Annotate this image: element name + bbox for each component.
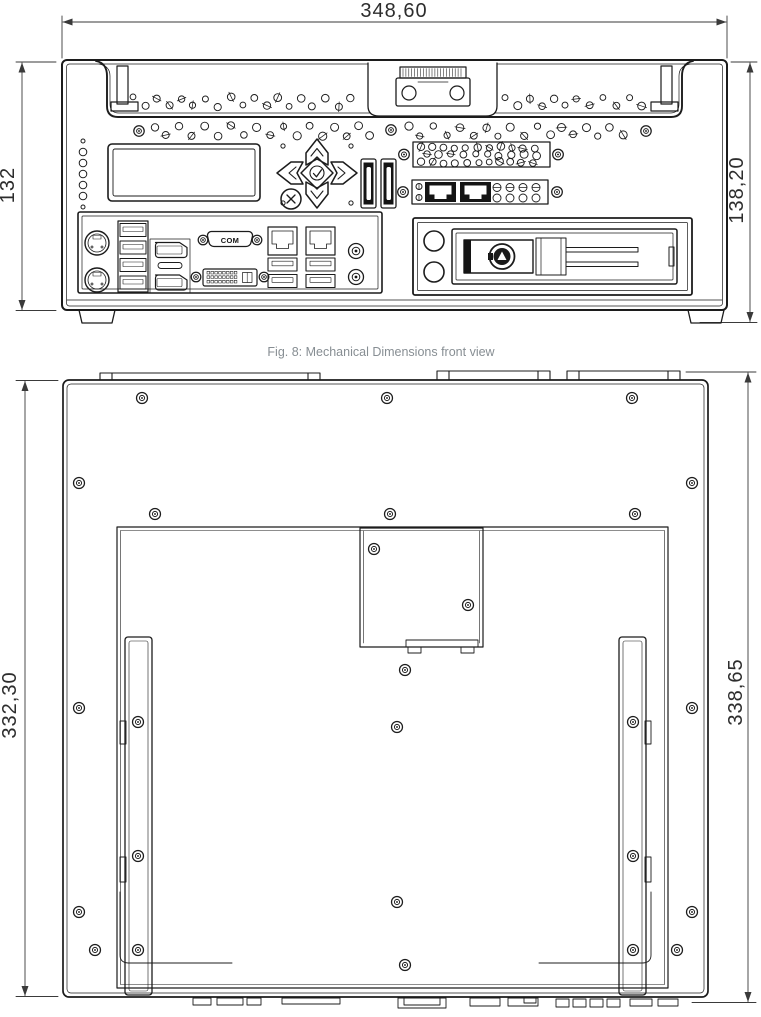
displayport-stack [150, 239, 190, 293]
vent-cluster-panel [413, 142, 550, 168]
corner-gussets [120, 892, 651, 963]
manual-figure-page: 348,60 132 138,20 [0, 0, 761, 1017]
lan-usb-block-1 [268, 227, 297, 288]
nav-down-button [306, 182, 328, 208]
ps2-port-top [85, 231, 109, 255]
usb-port [306, 258, 335, 271]
pin-hole-grid [493, 184, 540, 203]
vent-holes-recess-right [502, 94, 647, 110]
dim-height-right-front: 138,20 [700, 62, 757, 323]
nav-keypad [277, 139, 357, 209]
dim-label-height-left-back: 332,30 [0, 671, 21, 738]
vent-holes-recess-left [130, 92, 354, 112]
foot-left [79, 310, 115, 323]
recess-hook-right [661, 66, 672, 104]
led-column [79, 139, 87, 209]
drive-tray [452, 229, 677, 284]
back-view-drawing: 332,30 338,65 [0, 371, 756, 1008]
sata-port-2 [381, 159, 396, 208]
dual-lan-panel [412, 180, 548, 204]
audio-jacks [349, 244, 364, 285]
docking-connector [368, 63, 497, 116]
lcd-display [108, 144, 260, 201]
displayport-2 [156, 275, 188, 290]
top-tabs [100, 371, 680, 380]
nav-right-button [331, 162, 357, 184]
check-icon [310, 166, 324, 180]
back-chassis [63, 371, 708, 1008]
usb-port [268, 258, 297, 271]
dim-width-top: 348,60 [62, 0, 727, 58]
drive-bay [413, 218, 692, 295]
usb-stack [118, 221, 148, 292]
dim-label-height-left-front: 132 [0, 167, 19, 203]
sata-port-1 [361, 159, 376, 208]
figure-caption: Fig. 8: Mechanical Dimensions front view [267, 345, 495, 359]
bottom-connectors [193, 997, 678, 1008]
mechanical-dimensions-figure: 348,60 132 138,20 [0, 0, 761, 1017]
com-port: COM [207, 231, 252, 246]
displayport-1 [156, 243, 188, 258]
nav-up-button [306, 139, 328, 165]
lan-port-2 [460, 182, 491, 202]
usb-port [268, 275, 297, 288]
lan-usb-block-2 [306, 227, 335, 288]
bay-button-bottom [424, 262, 444, 282]
dvi-port [203, 269, 257, 286]
lan-port-1 [425, 182, 456, 202]
foot-right [688, 310, 724, 323]
dim-label-width-top: 348,60 [360, 0, 427, 22]
ps2-port-bottom [85, 268, 109, 292]
vent-holes-face-left [151, 122, 373, 140]
io-panel: COM [78, 212, 382, 293]
dim-label-height-right-front: 138,20 [726, 156, 748, 223]
bay-button-top [424, 231, 444, 251]
recess-hook-left [117, 66, 128, 104]
back-screws [74, 393, 698, 971]
x-icon [287, 195, 295, 203]
vent-holes-face-right [405, 122, 627, 140]
dim-label-height-right-back: 338,65 [725, 658, 747, 725]
dim-height-left-back: 332,30 [0, 381, 58, 997]
tray-lock [464, 240, 533, 273]
tray-handle [536, 238, 674, 275]
nav-left-button [277, 162, 303, 184]
sata-ports [361, 159, 396, 208]
front-view-drawing: 348,60 132 138,20 [0, 0, 757, 323]
mounting-rail-right [619, 637, 651, 995]
mounting-rail-left [120, 637, 152, 995]
usb-port [306, 275, 335, 288]
com-port-label: COM [221, 236, 239, 245]
back-inner-panel [117, 527, 668, 988]
dim-height-left-front: 132 [0, 62, 56, 311]
